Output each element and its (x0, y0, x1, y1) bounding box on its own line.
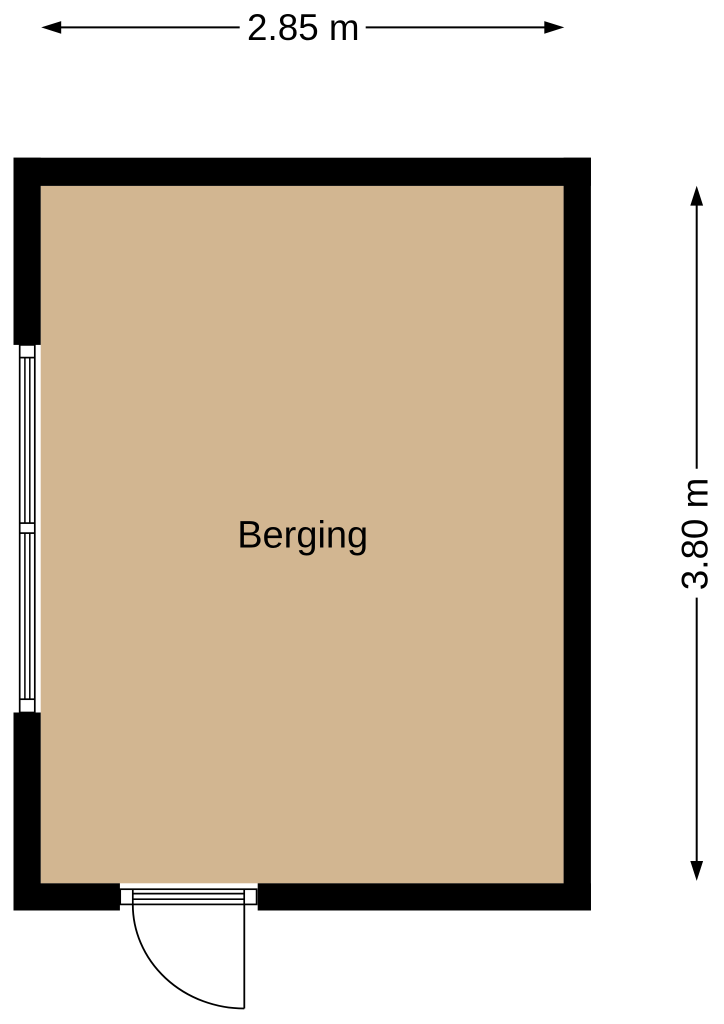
svg-text:Berging: Berging (237, 515, 368, 557)
svg-text:2.85 m: 2.85 m (247, 7, 360, 48)
svg-text:3.80 m: 3.80 m (674, 478, 715, 591)
